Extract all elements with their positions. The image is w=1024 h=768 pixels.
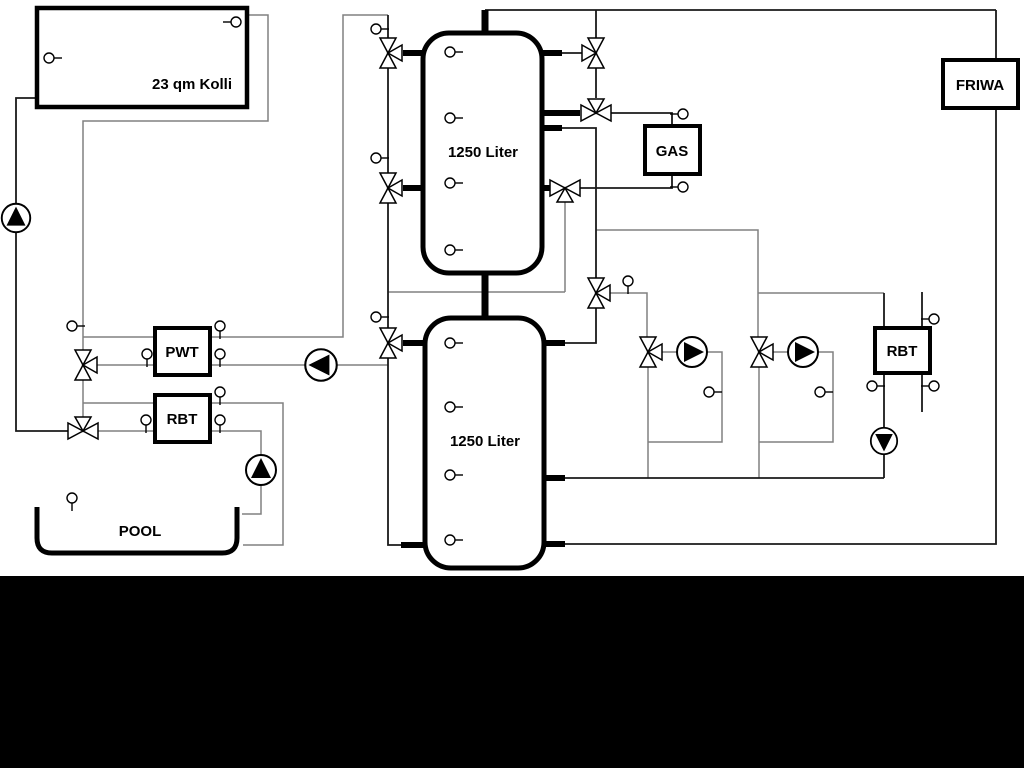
friwa-label: FRIWA <box>956 77 1004 94</box>
rbt-left-label: RBT <box>167 411 198 428</box>
pool-label: POOL <box>119 523 162 540</box>
pump-pool-up-icon <box>246 455 276 485</box>
pump-heating-group2-right-icon <box>788 337 818 367</box>
pump-rbt-down-icon <box>871 428 897 454</box>
pump-solar-up-icon <box>2 204 31 233</box>
rbt-right-label: RBT <box>887 343 918 360</box>
footer-band <box>0 576 1024 768</box>
hydraulic-schematic: 23 qm Kolli 1250 Liter 1250 Liter GAS FR… <box>0 0 1024 768</box>
tank-top-label: 1250 Liter <box>448 144 518 161</box>
pwt-label: PWT <box>165 344 198 361</box>
tank-bottom-label: 1250 Liter <box>450 433 520 450</box>
pump-pwt-left-icon <box>305 349 337 381</box>
gas-label: GAS <box>656 143 689 160</box>
schematic-canvas: 23 qm Kolli 1250 Liter 1250 Liter GAS FR… <box>0 0 1024 768</box>
pump-heating-group1-right-icon <box>677 337 707 367</box>
collector-label: 23 qm Kolli <box>152 76 232 93</box>
